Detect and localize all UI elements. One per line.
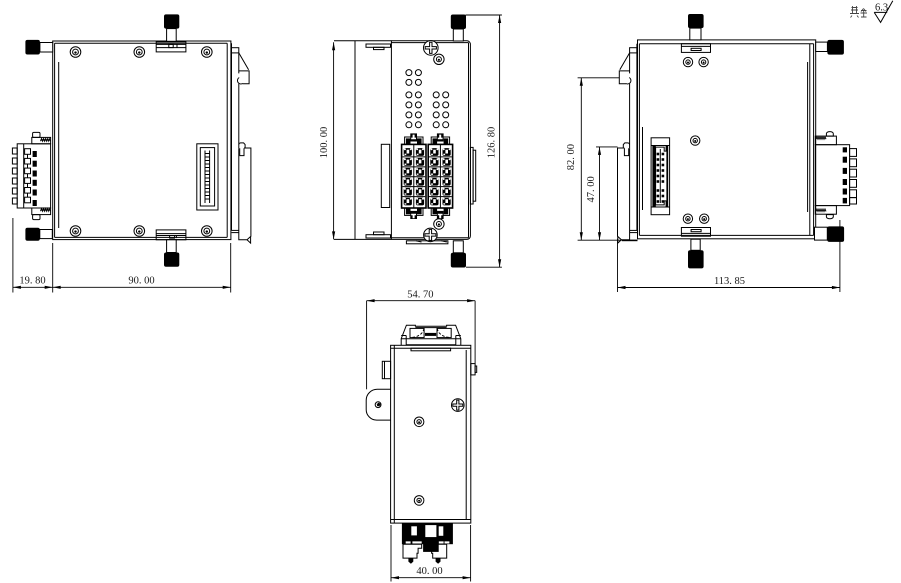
svg-text:90. 00: 90. 00 <box>128 276 154 287</box>
svg-text:126. 80: 126. 80 <box>486 127 497 159</box>
svg-text:82. 00: 82. 00 <box>566 144 577 170</box>
svg-text:47. 00: 47. 00 <box>586 176 597 202</box>
svg-text:100. 00: 100. 00 <box>319 127 330 159</box>
svg-text:113. 85: 113. 85 <box>714 276 745 287</box>
svg-text:40. 00: 40. 00 <box>416 566 442 577</box>
svg-text:54. 70: 54. 70 <box>407 290 433 301</box>
svg-text:19. 80: 19. 80 <box>19 276 45 287</box>
